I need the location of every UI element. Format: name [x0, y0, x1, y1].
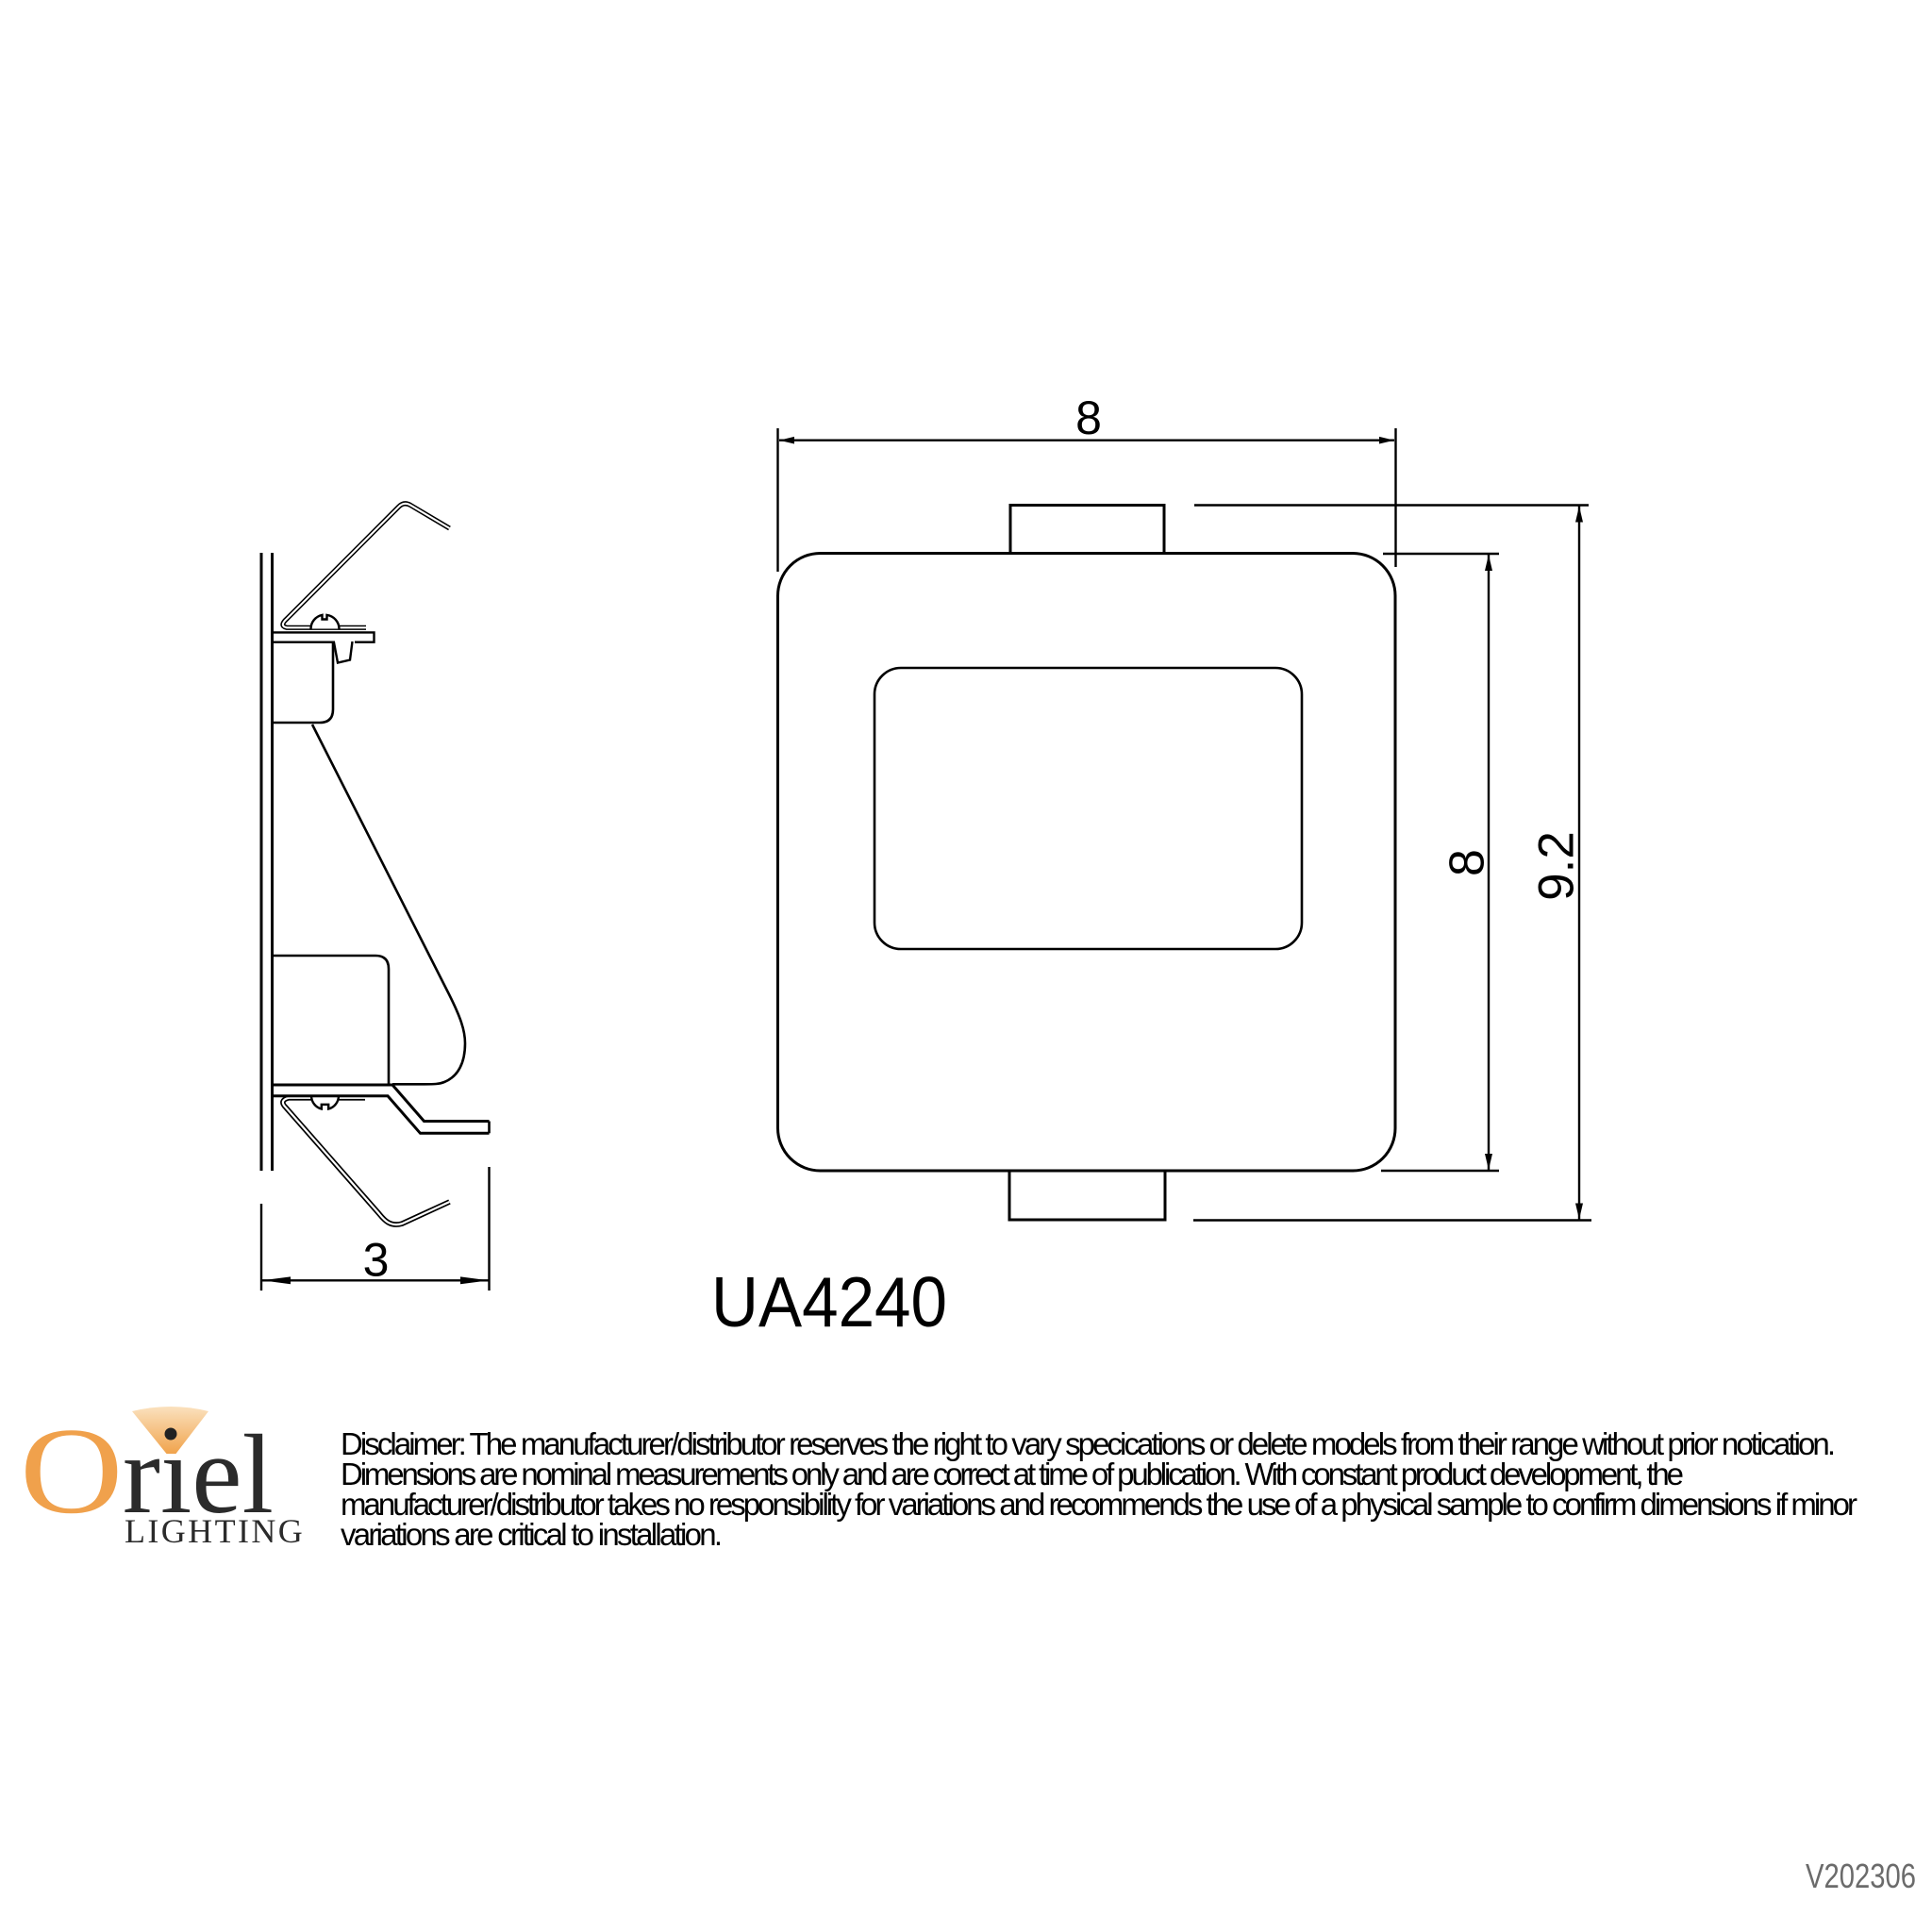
svg-text:O: O: [20, 1402, 123, 1539]
svg-text:3: 3: [363, 1234, 390, 1287]
svg-text:UA4240: UA4240: [711, 1262, 947, 1341]
svg-text:variations are critical to ins: variations are critical to installation.: [341, 1517, 723, 1552]
svg-text:LIGHTING: LIGHTING: [125, 1512, 305, 1550]
svg-text:8: 8: [1441, 849, 1495, 876]
svg-text:9.2: 9.2: [1529, 831, 1585, 901]
svg-text:V202306: V202306: [1806, 1857, 1916, 1895]
svg-text:8: 8: [1075, 391, 1102, 444]
